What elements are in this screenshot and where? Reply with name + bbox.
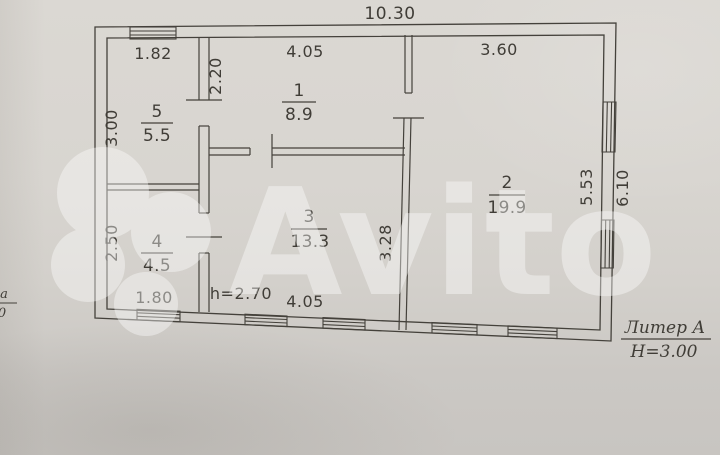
dim-total-width: 10.30 (364, 4, 415, 24)
room5-area: 5.5 (143, 126, 171, 146)
room1-area: 8.9 (285, 105, 313, 125)
edge-fragment-annotation: а 0 (0, 287, 17, 321)
avito-logo-circle-4 (114, 272, 178, 336)
interior-wall-room1-room3 (209, 148, 405, 155)
avito-logo-circle-3 (51, 228, 125, 302)
dim-room5-height: 3.00 (102, 109, 121, 147)
dim-room2-width: 3.60 (480, 40, 518, 59)
room5-number: 5 (151, 102, 162, 122)
floorplan-drawing: 10.30 1.82 4.05 3.60 2.20 3.00 2.50 3.28… (0, 0, 720, 455)
avito-logo-circle-2 (131, 192, 211, 272)
dim-room1-height: 2.20 (206, 57, 225, 95)
building-height-label: Н=3.00 (630, 342, 698, 362)
room1-number: 1 (293, 81, 304, 101)
avito-watermark: Avito (51, 147, 657, 336)
edge-fragment-bottom: 0 (0, 306, 6, 321)
dim-room1-width: 4.05 (286, 42, 324, 61)
avito-watermark-text: Avito (228, 157, 657, 329)
room1-label: 1 8.9 (282, 81, 316, 125)
dim-room5-width: 1.82 (134, 44, 172, 63)
floorplan-photo: 10.30 1.82 4.05 3.60 2.20 3.00 2.50 3.28… (0, 0, 720, 455)
edge-fragment-top: а (0, 287, 8, 302)
room5-label: 5 5.5 (141, 102, 173, 146)
